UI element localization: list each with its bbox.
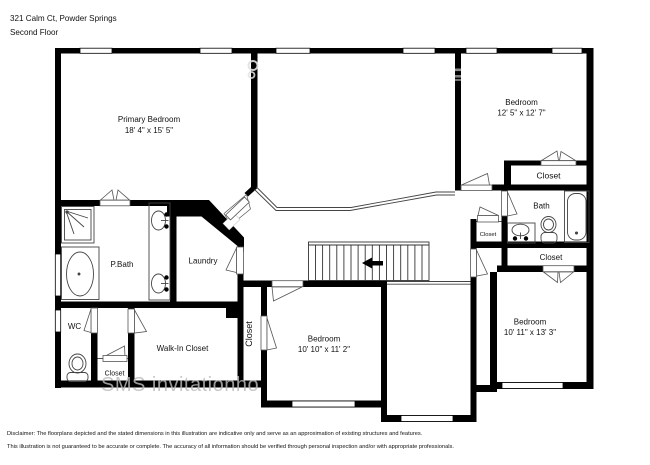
svg-text:Closet: Closet xyxy=(480,232,497,238)
svg-text:WC: WC xyxy=(68,322,82,331)
svg-text:SMS invitationho: SMS invitationho xyxy=(101,374,259,396)
svg-text:Walk-In Closet: Walk-In Closet xyxy=(157,344,209,353)
svg-text:Closet: Closet xyxy=(540,253,563,262)
svg-text:Bedroom: Bedroom xyxy=(505,98,538,107)
svg-text:P.Bath: P.Bath xyxy=(111,260,134,269)
svg-text:Bedroom: Bedroom xyxy=(514,318,547,327)
svg-text:Bedroom: Bedroom xyxy=(308,335,341,344)
svg-text:10' 10" x 11' 2": 10' 10" x 11' 2" xyxy=(298,345,350,354)
svg-text:Disclaimer: The floorplans dep: Disclaimer: The floorplans depicted and … xyxy=(7,431,423,437)
svg-text:Closet: Closet xyxy=(536,171,561,181)
svg-text:10' 11" x 13' 3": 10' 11" x 13' 3" xyxy=(504,328,556,337)
svg-text:Bath: Bath xyxy=(533,202,549,211)
svg-text:18' 4" x 15' 5": 18' 4" x 15' 5" xyxy=(125,126,173,135)
svg-text:321 Calm Ct, Powder Springs: 321 Calm Ct, Powder Springs xyxy=(10,14,117,23)
svg-text:Second Floor: Second Floor xyxy=(10,28,58,37)
svg-text:Closet: Closet xyxy=(244,321,254,347)
svg-text:This illustration is not guara: This illustration is not guaranteed to b… xyxy=(7,444,454,450)
svg-text:Laundry: Laundry xyxy=(189,257,218,266)
svg-text:Primary Bedroom: Primary Bedroom xyxy=(118,115,181,124)
svg-text:12' 5" x 12' 7": 12' 5" x 12' 7" xyxy=(497,109,545,118)
